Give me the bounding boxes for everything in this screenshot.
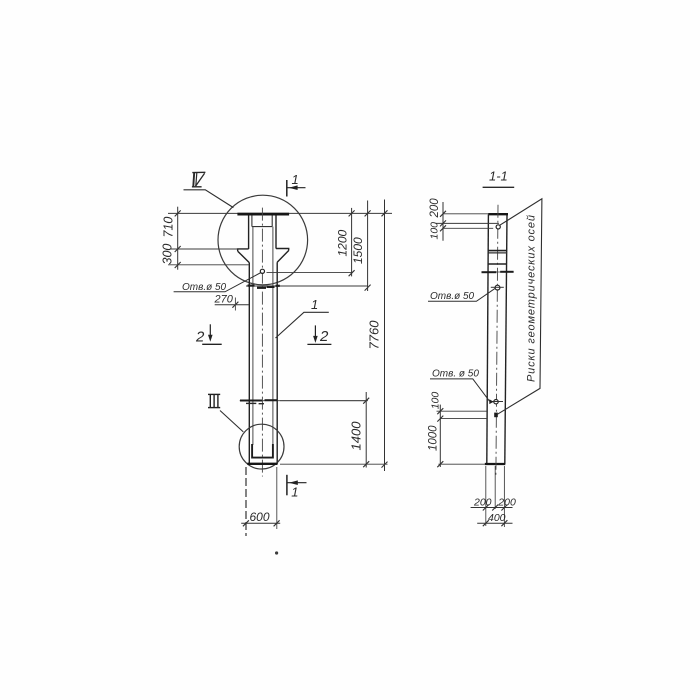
svg-text:2: 2	[195, 329, 205, 346]
svg-text:Отв. ø 50: Отв. ø 50	[432, 369, 479, 380]
svg-text:1: 1	[291, 485, 298, 500]
svg-text:1500: 1500	[351, 237, 365, 264]
svg-text:270: 270	[214, 294, 234, 306]
svg-text:1: 1	[292, 172, 299, 187]
svg-text:1-1: 1-1	[489, 169, 508, 184]
svg-text:1000: 1000	[428, 425, 440, 451]
svg-text:100: 100	[430, 392, 442, 410]
svg-text:7760: 7760	[367, 320, 382, 350]
svg-text:2: 2	[319, 328, 329, 345]
svg-text:Отв.ø 50: Отв.ø 50	[430, 291, 475, 302]
svg-text:600: 600	[250, 510, 270, 524]
svg-text:400: 400	[488, 512, 506, 524]
svg-text:200: 200	[473, 497, 492, 509]
svg-text:300: 300	[161, 244, 175, 265]
svg-text:710: 710	[162, 217, 176, 238]
svg-text:1200: 1200	[336, 229, 350, 256]
svg-text:200: 200	[497, 497, 516, 509]
svg-text:Риски геометрических осей: Риски геометрических осей	[526, 214, 538, 382]
svg-text:1400: 1400	[349, 421, 364, 451]
svg-text:200: 200	[429, 198, 441, 219]
svg-text:100: 100	[429, 222, 441, 240]
svg-text:1: 1	[311, 297, 318, 312]
